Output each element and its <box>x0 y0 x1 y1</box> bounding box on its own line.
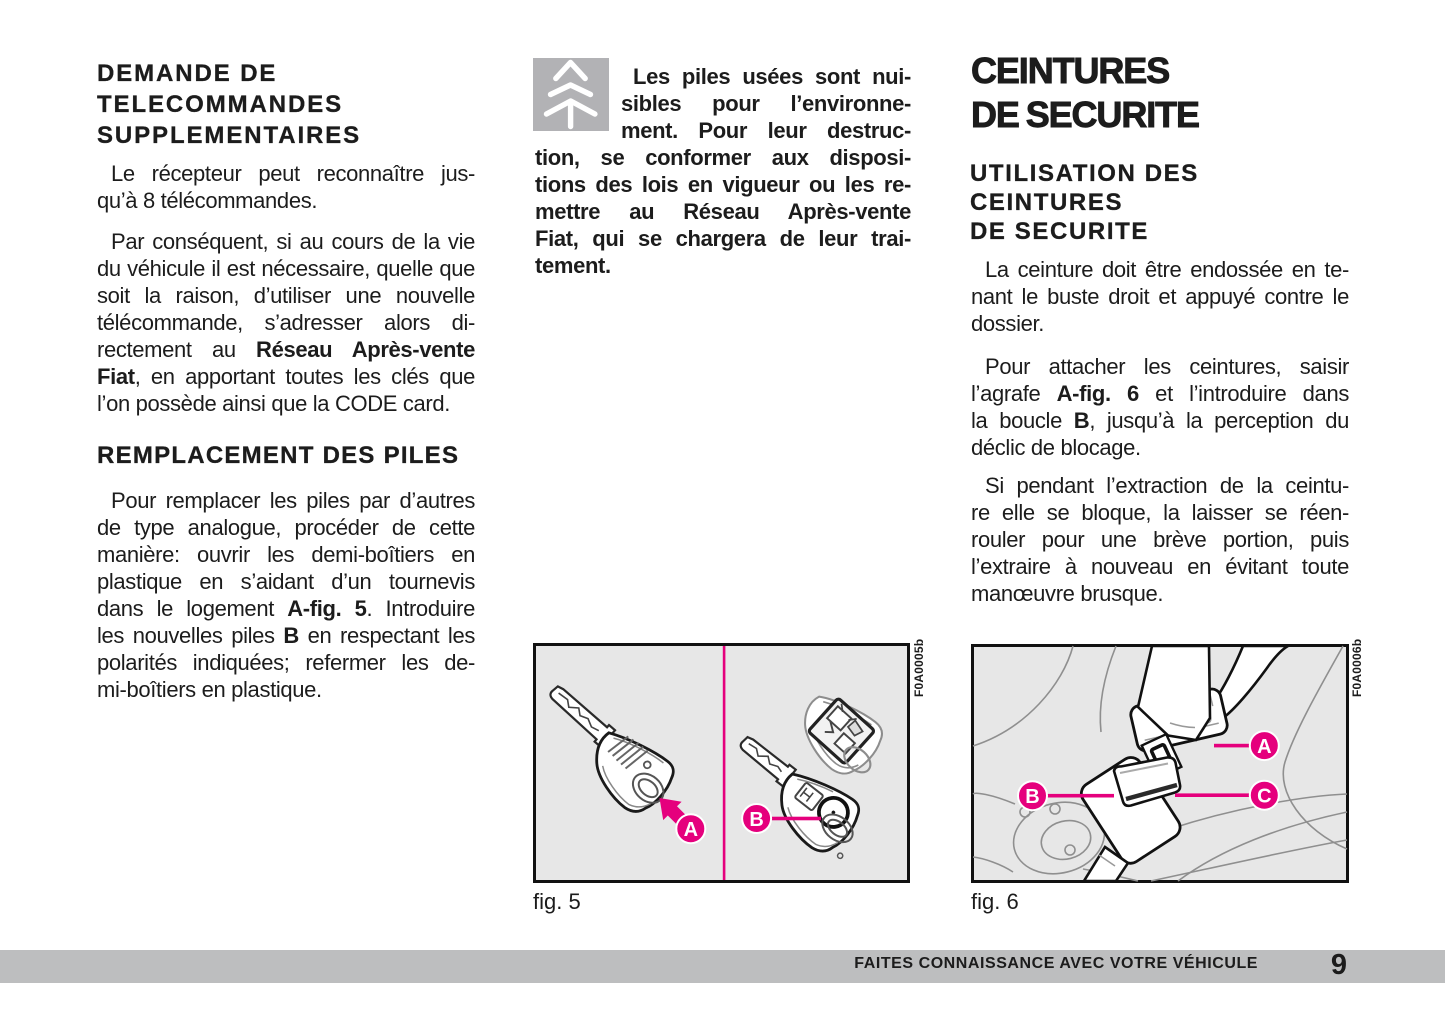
svg-text:C: C <box>1257 786 1271 808</box>
svg-text:B: B <box>1025 786 1039 808</box>
svg-text:A: A <box>684 819 698 841</box>
svg-text:A: A <box>1257 736 1271 758</box>
svg-text:B: B <box>749 809 763 831</box>
